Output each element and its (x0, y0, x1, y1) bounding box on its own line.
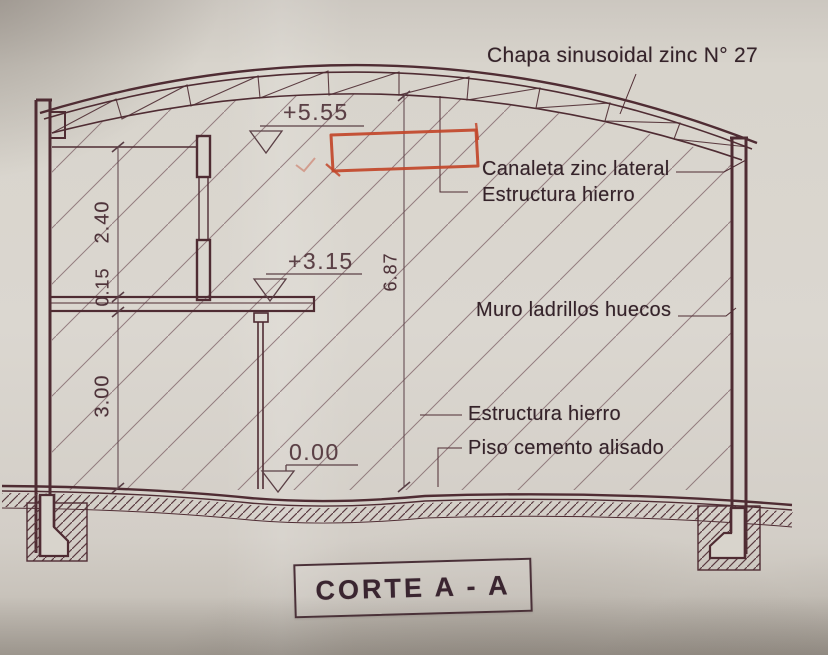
right-footing (698, 506, 760, 570)
label-gutter: Canaleta zinc lateral (482, 158, 670, 181)
label-roof-sheet: Chapa sinusoidal zinc N° 27 (487, 44, 758, 68)
right-wall (730, 138, 748, 554)
label-brick-wall: Muro ladrillos huecos (476, 299, 671, 322)
left-wall (36, 100, 52, 553)
section-drawing (0, 0, 828, 655)
level-roof: +5.55 (283, 99, 349, 126)
blueprint-photo: Chapa sinusoidal zinc N° 27 Canaleta zin… (0, 0, 828, 655)
dimension-lower-height: 3.00 (92, 375, 115, 418)
label-structure-upper: Estructura hierro (482, 184, 635, 207)
dimension-total-height: 6.87 (381, 252, 402, 291)
left-footing (27, 495, 87, 561)
drawing-title-box: CORTE A - A (293, 558, 532, 619)
floor-slab (2, 486, 792, 527)
dimension-upper-height: 2.40 (92, 201, 115, 244)
label-structure-lower: Estructura hierro (468, 403, 621, 426)
dimension-slab-thickness: 0.15 (93, 267, 114, 306)
level-mezzanine: +3.15 (288, 248, 354, 275)
label-floor-finish: Piso cemento alisado (468, 437, 664, 460)
drawing-title: CORTE A - A (315, 570, 511, 606)
level-ground: 0.00 (289, 439, 340, 466)
